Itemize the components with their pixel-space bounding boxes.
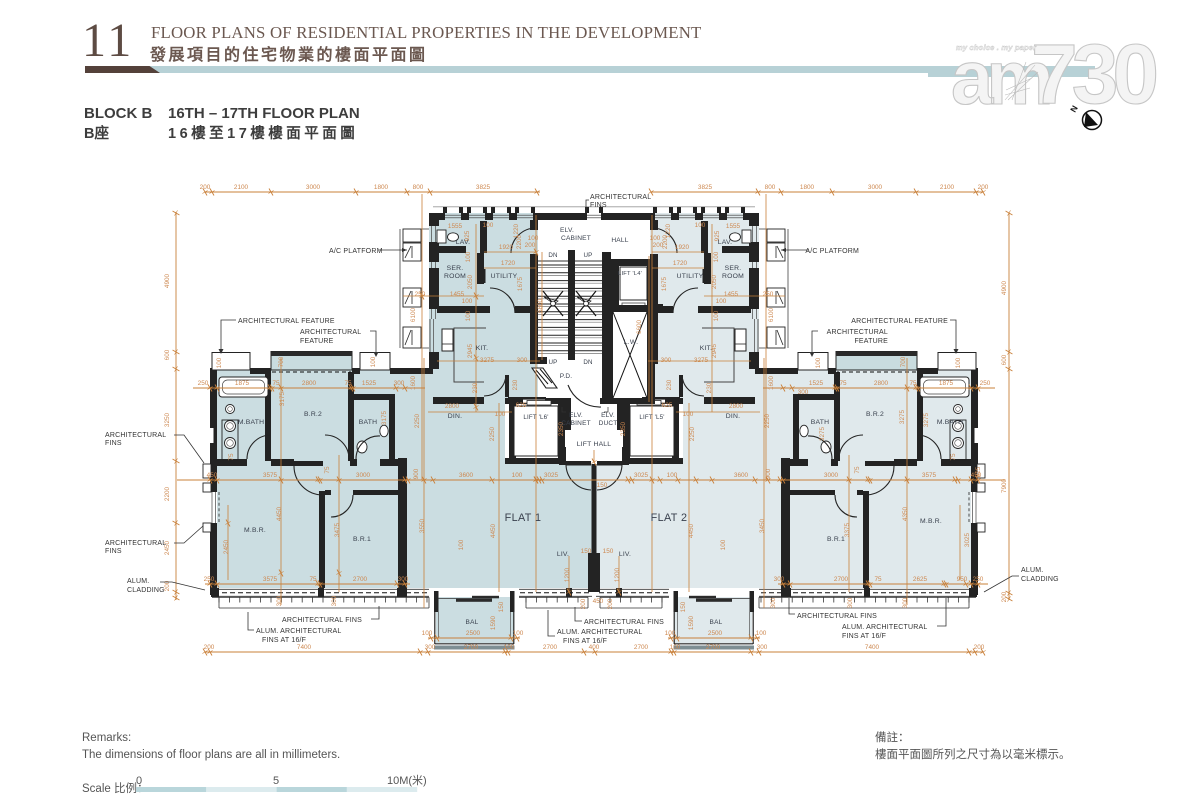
svg-text:1675: 1675 <box>517 276 524 291</box>
svg-text:3025: 3025 <box>544 472 559 479</box>
svg-text:BAL: BAL <box>710 619 723 626</box>
svg-text:1200: 1200 <box>564 567 571 582</box>
svg-text:3600: 3600 <box>734 472 749 479</box>
svg-text:3025: 3025 <box>964 532 971 547</box>
svg-text:Remarks:: Remarks: <box>82 732 131 744</box>
svg-text:4900: 4900 <box>164 273 171 288</box>
svg-text:FINS: FINS <box>105 440 122 447</box>
svg-text:100: 100 <box>465 310 472 321</box>
svg-text:ELV.: ELV. <box>601 412 615 419</box>
svg-text:10M(米): 10M(米) <box>387 774 427 787</box>
svg-text:3025: 3025 <box>634 472 649 479</box>
svg-text:BATH: BATH <box>811 419 829 426</box>
svg-text:2050: 2050 <box>467 274 474 289</box>
svg-text:600: 600 <box>1001 354 1008 365</box>
svg-text:P.D.: P.D. <box>560 373 573 380</box>
svg-text:BAL: BAL <box>466 619 479 626</box>
svg-text:FLAT 1: FLAT 1 <box>505 512 542 524</box>
svg-text:75: 75 <box>839 380 847 387</box>
svg-text:LIV.: LIV. <box>619 551 631 558</box>
svg-text:FINS: FINS <box>105 548 122 555</box>
svg-text:1600: 1600 <box>410 375 417 390</box>
svg-text:300: 300 <box>774 576 785 583</box>
svg-text:800: 800 <box>765 184 776 191</box>
svg-text:100: 100 <box>955 357 962 368</box>
svg-text:FLAT 2: FLAT 2 <box>651 512 688 524</box>
svg-text:7400: 7400 <box>297 644 312 651</box>
svg-text:200: 200 <box>974 644 985 651</box>
svg-text:100: 100 <box>650 235 661 242</box>
svg-text:FEATURE: FEATURE <box>854 338 888 345</box>
svg-text:B.R.1: B.R.1 <box>827 536 845 543</box>
svg-text:6800: 6800 <box>537 298 544 313</box>
svg-text:1455: 1455 <box>450 291 465 298</box>
svg-text:150: 150 <box>603 548 614 555</box>
svg-text:2700: 2700 <box>353 576 368 583</box>
svg-text:75: 75 <box>344 380 352 387</box>
svg-text:CABINET: CABINET <box>561 235 591 242</box>
svg-text:400: 400 <box>589 644 600 651</box>
svg-text:2625: 2625 <box>913 576 928 583</box>
svg-text:my choice . my paper: my choice . my paper <box>956 43 1037 52</box>
svg-text:ARCHITECTURAL: ARCHITECTURAL <box>827 329 888 336</box>
svg-text:3275: 3275 <box>819 426 826 441</box>
svg-text:ARCHITECTURAL FEATURE: ARCHITECTURAL FEATURE <box>851 318 948 325</box>
svg-text:250: 250 <box>204 576 215 583</box>
svg-text:150: 150 <box>498 601 505 612</box>
svg-text:6100: 6100 <box>768 307 775 322</box>
svg-text:100: 100 <box>422 630 433 637</box>
svg-text:2800: 2800 <box>302 380 317 387</box>
svg-text:FINS AT 16/F: FINS AT 16/F <box>563 638 607 645</box>
svg-text:ARCHITECTURAL: ARCHITECTURAL <box>105 540 166 547</box>
svg-text:3000: 3000 <box>306 184 321 191</box>
svg-text:250: 250 <box>973 576 984 583</box>
svg-text:200: 200 <box>580 598 587 609</box>
svg-text:300: 300 <box>276 595 283 606</box>
svg-text:ALUM.: ALUM. <box>127 578 149 585</box>
svg-text:2700: 2700 <box>634 644 649 651</box>
svg-text:1590: 1590 <box>490 615 497 630</box>
svg-text:SER.: SER. <box>447 265 464 272</box>
svg-text:A/C PLATFORM: A/C PLATFORM <box>329 248 383 255</box>
svg-text:KIT.: KIT. <box>476 345 489 352</box>
svg-text:825: 825 <box>975 466 982 477</box>
svg-text:LIFT HALL: LIFT HALL <box>577 441 612 448</box>
svg-text:ARCHITECTURAL: ARCHITECTURAL <box>105 432 166 439</box>
svg-text:100: 100 <box>716 298 727 305</box>
svg-text:250: 250 <box>763 291 774 298</box>
svg-text:2500: 2500 <box>466 630 481 637</box>
svg-text:2250: 2250 <box>689 426 696 441</box>
svg-text:樓面平面圖所列之尺寸為以毫米標示。: 樓面平面圖所列之尺寸為以毫米標示。 <box>875 747 1071 761</box>
svg-text:4350: 4350 <box>902 506 909 521</box>
svg-text:300: 300 <box>770 597 777 608</box>
svg-text:75: 75 <box>909 380 917 387</box>
svg-text:230: 230 <box>472 382 479 393</box>
svg-text:7400: 7400 <box>865 644 880 651</box>
svg-text:100: 100 <box>720 539 727 550</box>
svg-text:ARCHITECTURAL FINS: ARCHITECTURAL FINS <box>584 619 664 626</box>
svg-text:ALUM. ARCHITECTURAL: ALUM. ARCHITECTURAL <box>842 624 927 631</box>
svg-text:200: 200 <box>978 184 989 191</box>
svg-text:DIN.: DIN. <box>448 413 462 420</box>
svg-text:100: 100 <box>713 251 720 262</box>
svg-text:75: 75 <box>874 576 882 583</box>
svg-text:3825: 3825 <box>476 184 491 191</box>
svg-text:2700: 2700 <box>834 576 849 583</box>
svg-text:2100: 2100 <box>940 184 955 191</box>
svg-text:200: 200 <box>607 598 614 609</box>
svg-text:2800: 2800 <box>874 380 889 387</box>
svg-text:DN: DN <box>548 252 557 259</box>
svg-text:B.R.1: B.R.1 <box>353 536 371 543</box>
svg-text:230: 230 <box>512 379 519 390</box>
svg-text:M.BATH: M.BATH <box>238 419 264 426</box>
svg-text:100: 100 <box>528 235 539 242</box>
svg-text:1600: 1600 <box>768 375 775 390</box>
svg-text:800: 800 <box>413 184 424 191</box>
svg-text:1675: 1675 <box>661 276 668 291</box>
svg-text:DUCT: DUCT <box>599 420 618 427</box>
svg-text:5: 5 <box>273 775 279 787</box>
svg-text:2250: 2250 <box>489 426 496 441</box>
svg-text:1800: 1800 <box>374 184 389 191</box>
svg-text:150: 150 <box>597 482 608 489</box>
svg-text:FINS AT 16/F: FINS AT 16/F <box>262 637 306 644</box>
svg-text:3000: 3000 <box>356 472 371 479</box>
svg-text:B.R.2: B.R.2 <box>304 411 322 418</box>
svg-text:2700: 2700 <box>543 644 558 651</box>
svg-text:2500: 2500 <box>708 630 723 637</box>
svg-text:2800: 2800 <box>729 403 744 410</box>
svg-text:100: 100 <box>370 356 377 367</box>
svg-text:300: 300 <box>847 597 854 608</box>
svg-text:100: 100 <box>504 644 515 651</box>
svg-text:3275: 3275 <box>899 409 906 424</box>
svg-text:75: 75 <box>854 466 861 474</box>
svg-text:300: 300 <box>398 576 409 583</box>
svg-text:ARCHITECTURAL FINS: ARCHITECTURAL FINS <box>282 617 362 624</box>
svg-text:UP: UP <box>584 252 593 259</box>
svg-text:SER.: SER. <box>725 265 742 272</box>
svg-text:BATH: BATH <box>359 419 377 426</box>
svg-text:3550: 3550 <box>419 518 426 533</box>
svg-text:ARCHITECTURAL FINS: ARCHITECTURAL FINS <box>797 613 877 620</box>
svg-text:450: 450 <box>593 598 604 605</box>
svg-text:100: 100 <box>465 251 472 262</box>
svg-text:300: 300 <box>394 380 405 387</box>
svg-text:ELV.: ELV. <box>560 227 574 234</box>
svg-text:3600: 3600 <box>459 472 474 479</box>
svg-text:3000: 3000 <box>824 472 839 479</box>
svg-text:3575: 3575 <box>263 472 278 479</box>
svg-text:4450: 4450 <box>490 523 497 538</box>
svg-text:M.B.R.: M.B.R. <box>244 527 266 534</box>
svg-text:950: 950 <box>957 576 968 583</box>
svg-text:ROOM: ROOM <box>722 273 744 280</box>
svg-text:3250: 3250 <box>164 412 171 427</box>
svg-text:6600: 6600 <box>636 319 643 334</box>
svg-text:75: 75 <box>309 576 317 583</box>
svg-text:1525: 1525 <box>809 380 824 387</box>
svg-text:625: 625 <box>662 402 673 409</box>
svg-text:300: 300 <box>661 357 672 364</box>
svg-text:100: 100 <box>695 222 706 229</box>
svg-text:700: 700 <box>278 356 285 367</box>
svg-text:3450: 3450 <box>759 518 766 533</box>
svg-text:3475: 3475 <box>334 522 341 537</box>
svg-text:100: 100 <box>512 472 523 479</box>
svg-text:1800: 1800 <box>800 184 815 191</box>
svg-text:200: 200 <box>1001 591 1008 602</box>
svg-text:1555: 1555 <box>726 223 741 230</box>
svg-text:1920: 1920 <box>499 244 514 251</box>
svg-text:1875: 1875 <box>939 380 954 387</box>
svg-text:2250: 2250 <box>414 413 421 428</box>
svg-text:100: 100 <box>483 222 494 229</box>
svg-text:LAV.: LAV. <box>718 239 732 246</box>
svg-text:UTILITY: UTILITY <box>491 273 518 280</box>
svg-text:100: 100 <box>713 310 720 321</box>
svg-text:3000: 3000 <box>868 184 883 191</box>
svg-text:1590: 1590 <box>688 615 695 630</box>
svg-text:300: 300 <box>331 595 338 606</box>
svg-text:3275: 3275 <box>480 357 495 364</box>
svg-text:UTILITY: UTILITY <box>677 273 704 280</box>
svg-text:1720: 1720 <box>501 260 516 267</box>
svg-text:100: 100 <box>462 298 473 305</box>
svg-text:ARCHITECTURAL: ARCHITECTURAL <box>300 329 361 336</box>
svg-text:75: 75 <box>324 466 331 474</box>
svg-text:ALUM.: ALUM. <box>1021 567 1043 574</box>
svg-text:2250: 2250 <box>764 413 771 428</box>
svg-text:100: 100 <box>667 472 678 479</box>
svg-text:625: 625 <box>516 402 527 409</box>
svg-text:ALUM. ARCHITECTURAL: ALUM. ARCHITECTURAL <box>557 629 642 636</box>
svg-text:UP: UP <box>549 359 558 366</box>
svg-text:DN: DN <box>583 359 592 366</box>
svg-text:75: 75 <box>228 453 235 461</box>
svg-text:2700: 2700 <box>706 644 721 651</box>
svg-text:200: 200 <box>653 242 664 249</box>
svg-text:ELV.: ELV. <box>569 412 583 419</box>
svg-text:備註：: 備註： <box>875 730 910 744</box>
svg-text:700: 700 <box>900 356 907 367</box>
svg-text:1720: 1720 <box>673 260 688 267</box>
svg-text:150: 150 <box>680 601 687 612</box>
svg-text:1455: 1455 <box>724 291 739 298</box>
svg-text:2350: 2350 <box>620 421 627 436</box>
svg-text:0: 0 <box>136 775 142 787</box>
svg-text:3275: 3275 <box>694 357 709 364</box>
svg-text:75: 75 <box>272 380 280 387</box>
svg-text:300: 300 <box>902 597 909 608</box>
svg-text:M.BATH: M.BATH <box>937 419 963 426</box>
svg-text:3375: 3375 <box>844 522 851 537</box>
svg-text:LAV.: LAV. <box>456 239 470 246</box>
svg-text:100: 100 <box>458 539 465 550</box>
svg-text:3825: 3825 <box>698 184 713 191</box>
svg-text:1875: 1875 <box>235 380 250 387</box>
svg-text:DIN.: DIN. <box>726 413 740 420</box>
svg-text:3575: 3575 <box>922 472 937 479</box>
svg-text:250: 250 <box>980 380 991 387</box>
svg-text:300: 300 <box>757 644 768 651</box>
svg-text:7900: 7900 <box>1001 478 1008 493</box>
svg-text:150: 150 <box>581 548 592 555</box>
svg-text:100: 100 <box>665 630 676 637</box>
svg-text:3175: 3175 <box>381 410 388 425</box>
svg-text:100: 100 <box>815 357 822 368</box>
svg-text:2450: 2450 <box>223 539 230 554</box>
svg-text:CLADDING: CLADDING <box>1021 576 1059 583</box>
svg-text:M.B.R.: M.B.R. <box>920 518 942 525</box>
svg-text:FINS: FINS <box>590 202 607 209</box>
svg-text:200: 200 <box>204 644 215 651</box>
svg-text:730: 730 <box>1031 27 1156 121</box>
svg-text:250: 250 <box>198 380 209 387</box>
svg-text:200: 200 <box>200 184 211 191</box>
svg-text:ARCHITECTURAL: ARCHITECTURAL <box>590 194 651 201</box>
svg-text:CABINET: CABINET <box>561 420 591 427</box>
svg-text:ALUM. ARCHITECTURAL: ALUM. ARCHITECTURAL <box>256 628 341 635</box>
svg-text:100: 100 <box>513 630 524 637</box>
svg-text:2100: 2100 <box>234 184 249 191</box>
svg-text:2700: 2700 <box>464 644 479 651</box>
svg-text:CLADDING: CLADDING <box>127 587 165 594</box>
svg-text:300: 300 <box>425 644 436 651</box>
svg-text:KIT.: KIT. <box>700 345 713 352</box>
svg-text:FEATURE: FEATURE <box>300 338 334 345</box>
svg-text:1555: 1555 <box>448 223 463 230</box>
svg-text:The dimensions of floor plans: The dimensions of floor plans are all in… <box>82 749 340 761</box>
svg-text:3575: 3575 <box>263 576 278 583</box>
svg-text:1525: 1525 <box>362 380 377 387</box>
svg-text:LIV.: LIV. <box>557 551 569 558</box>
svg-text:4450: 4450 <box>276 506 283 521</box>
svg-text:2945: 2945 <box>467 343 474 358</box>
svg-text:100: 100 <box>756 630 767 637</box>
svg-text:ROOM: ROOM <box>444 273 466 280</box>
svg-text:FINS AT 16/F: FINS AT 16/F <box>842 633 886 640</box>
svg-text:LIFT 'L5': LIFT 'L5' <box>639 414 664 421</box>
svg-text:L.W.: L.W. <box>624 339 638 346</box>
svg-text:HALL: HALL <box>611 237 628 244</box>
svg-text:6100: 6100 <box>410 307 417 322</box>
svg-text:LIFT 'L6': LIFT 'L6' <box>523 414 548 421</box>
svg-text:100: 100 <box>216 357 223 368</box>
svg-text:B.R.2: B.R.2 <box>866 411 884 418</box>
svg-text:200: 200 <box>525 242 536 249</box>
svg-text:A/C PLATFORM: A/C PLATFORM <box>805 248 859 255</box>
svg-text:LIFT 'L4': LIFT 'L4' <box>618 271 642 277</box>
svg-text:1920: 1920 <box>675 244 690 251</box>
svg-text:3275: 3275 <box>923 412 930 427</box>
svg-text:450: 450 <box>207 472 218 479</box>
svg-text:ARCHITECTURAL FEATURE: ARCHITECTURAL FEATURE <box>238 318 335 325</box>
svg-text:300: 300 <box>517 357 528 364</box>
svg-text:230: 230 <box>666 379 673 390</box>
svg-text:600: 600 <box>164 349 171 360</box>
svg-text:4900: 4900 <box>1001 280 1008 295</box>
svg-text:2200: 2200 <box>164 486 171 501</box>
svg-text:300: 300 <box>798 389 809 396</box>
svg-text:900: 900 <box>413 468 420 479</box>
svg-text:75: 75 <box>950 453 957 461</box>
svg-text:100: 100 <box>670 644 681 651</box>
svg-text:1220: 1220 <box>513 223 520 238</box>
svg-text:1200: 1200 <box>614 567 621 582</box>
svg-text:3175: 3175 <box>279 391 286 406</box>
svg-text:2800: 2800 <box>445 403 460 410</box>
